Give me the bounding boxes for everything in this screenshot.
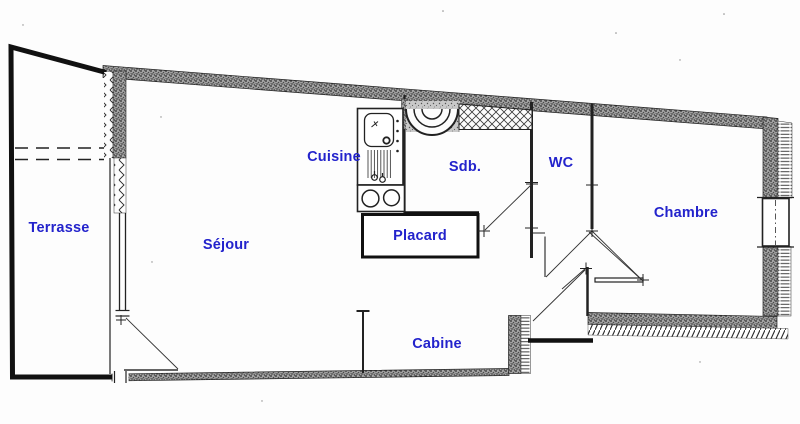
room-label-terrasse: Terrasse [29, 220, 90, 236]
kitchen-unit [358, 109, 405, 212]
entry-wall-column-hatch [521, 316, 531, 374]
wc-door-swing-right [592, 231, 642, 280]
floor-plan-page: Terrasse Séjour Cuisine Sdb. WC Chambre … [0, 0, 800, 424]
room-label-sdb: Sdb. [449, 159, 481, 175]
wc-door-swing-left [546, 231, 592, 277]
room-label-cabine: Cabine [412, 336, 462, 352]
terrace-wall-stipple [113, 71, 126, 158]
floor-plan-canvas: Terrasse Séjour Cuisine Sdb. WC Chambre … [0, 0, 800, 424]
entry-wall-column [509, 316, 522, 374]
room-label-sejour: Séjour [203, 237, 249, 253]
chambre-door-sill [595, 278, 643, 282]
room-label-wc: WC [549, 155, 574, 171]
right-wall-upper-hatch [778, 121, 792, 198]
terrace-structure [11, 47, 130, 383]
right-wall-lower-hatch [778, 247, 791, 317]
chambre-window [757, 198, 794, 248]
terrace-wall-chevrons-lower [114, 158, 126, 213]
cabine-door-swing [562, 268, 586, 289]
chambre-door-swing [589, 232, 643, 281]
terrace-outline [11, 47, 114, 377]
room-label-cuisine: Cuisine [307, 149, 361, 165]
room-label-placard: Placard [393, 228, 447, 244]
right-wall-lower [763, 247, 778, 317]
right-wall-upper [763, 117, 778, 198]
sdb-door-swing [485, 185, 531, 230]
hinge-cross-chambre [637, 274, 649, 286]
terrace-door-swing [126, 318, 178, 369]
entry-door-swing [533, 270, 585, 321]
room-label-chambre: Chambre [654, 205, 718, 221]
terrace-wall-chevrons-upper [104, 72, 113, 158]
stove-body [358, 185, 405, 212]
